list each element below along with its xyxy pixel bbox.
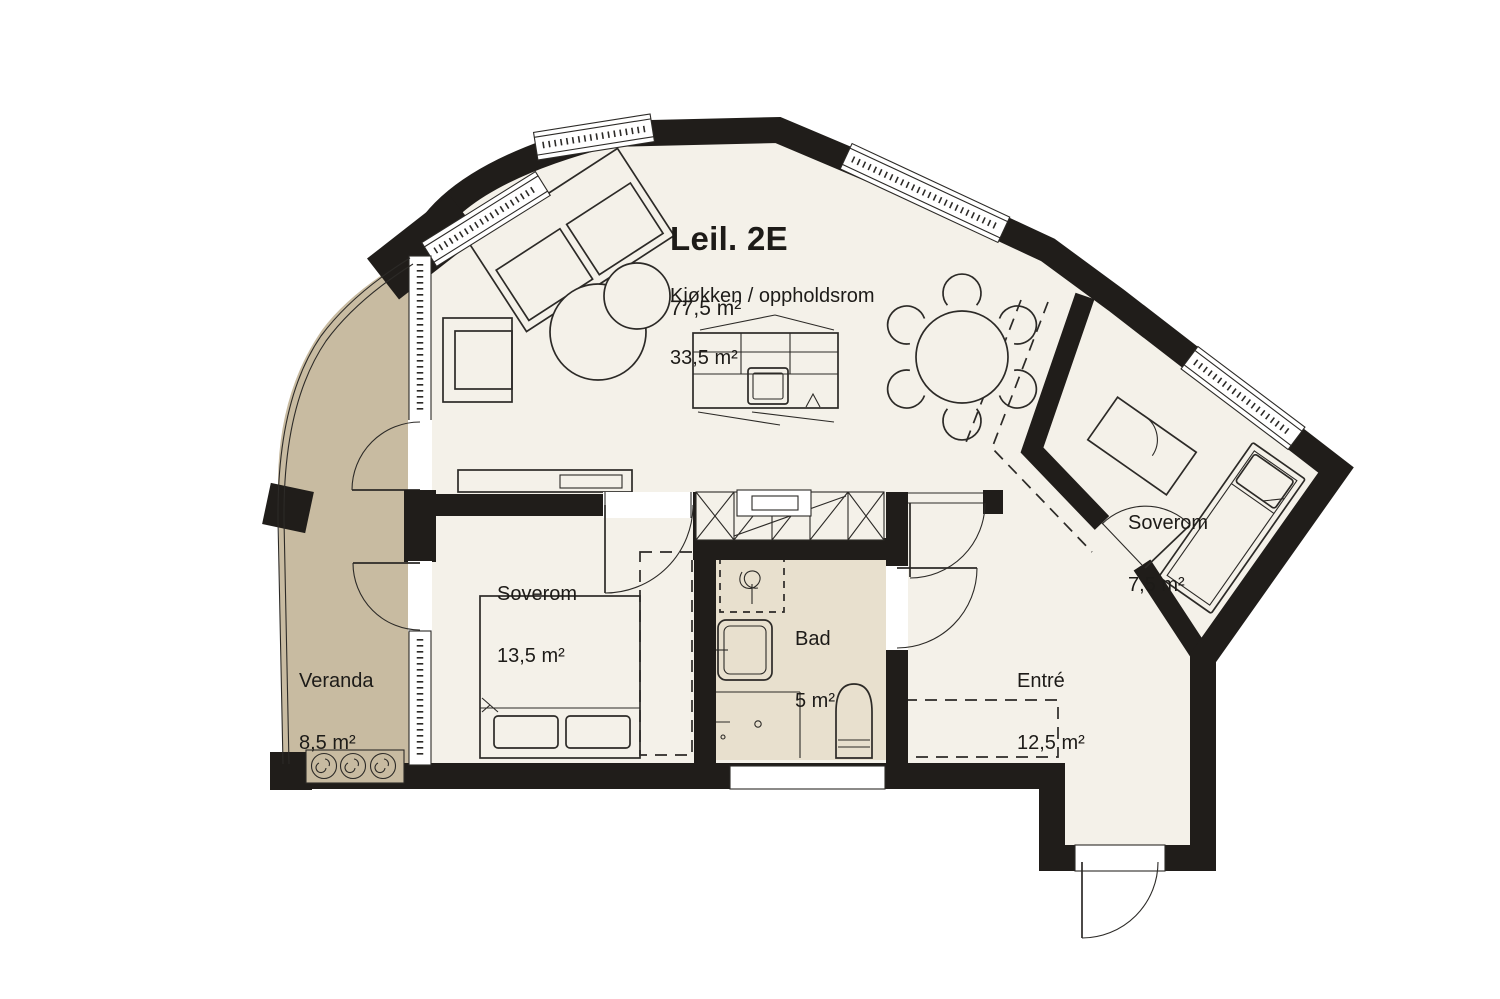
room-label-entry: Entré 12,5 m² [1017, 632, 1085, 792]
room-label-bathroom: Bad 5 m² [795, 590, 835, 750]
room-area: 7,5 m² [1128, 572, 1208, 598]
room-name: Bad [795, 626, 835, 652]
dining-table [916, 311, 1008, 403]
room-area: 8,5 m² [299, 730, 374, 756]
floor-plan-drawing [0, 0, 1500, 999]
wall-niche [730, 766, 885, 789]
room-label-bedroom-1: Soverom 13,5 m² [497, 545, 577, 705]
room-name: Kjøkken / oppholdsrom [670, 283, 875, 309]
floor-plan-canvas: Leil. 2E 77,5 m² Kjøkken / oppholdsrom 3… [0, 0, 1500, 999]
room-name: Soverom [1128, 510, 1208, 536]
room-name: Entré [1017, 668, 1085, 694]
room-area: 13,5 m² [497, 643, 577, 669]
room-area: 5 m² [795, 688, 835, 714]
entrance-door [1075, 845, 1165, 938]
room-label-kitchen-living: Kjøkken / oppholdsrom 33,5 m² [670, 247, 875, 407]
room-name: Soverom [497, 581, 577, 607]
wardrobe-row [696, 490, 884, 540]
door-swing [1082, 862, 1158, 938]
room-name: Veranda [299, 668, 374, 694]
room-label-bedroom-2: Soverom 7,5 m² [1128, 474, 1208, 634]
room-label-veranda: Veranda 8,5 m² [299, 632, 374, 792]
room-area: 12,5 m² [1017, 730, 1085, 756]
coffee-table-small [604, 263, 670, 329]
room-area: 33,5 m² [670, 345, 875, 371]
